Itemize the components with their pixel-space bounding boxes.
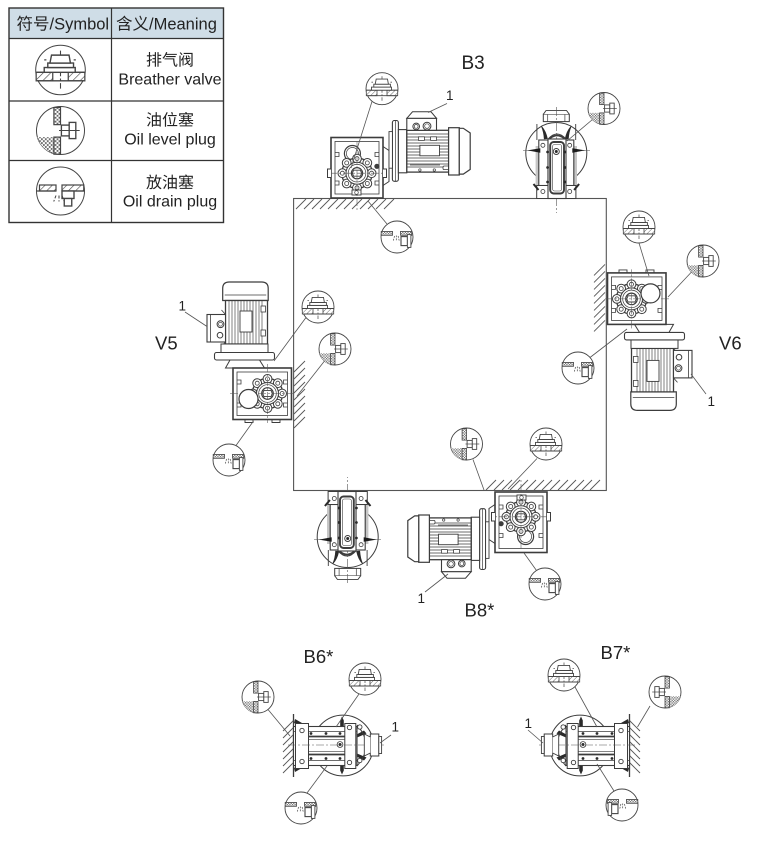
- svg-text:Breather valve: Breather valve: [118, 72, 221, 89]
- svg-text:B7*: B7*: [601, 642, 631, 663]
- svg-text:Oil level plug: Oil level plug: [124, 132, 216, 149]
- svg-text:V5: V5: [155, 333, 178, 354]
- svg-text:1: 1: [179, 299, 187, 314]
- svg-text:/Symbol: /Symbol: [50, 16, 110, 34]
- svg-text:1: 1: [446, 88, 454, 103]
- svg-text:1: 1: [392, 720, 400, 735]
- svg-text:B8*: B8*: [465, 600, 495, 621]
- svg-text:/Meaning: /Meaning: [149, 16, 217, 34]
- svg-text:1: 1: [418, 591, 426, 606]
- svg-text:1: 1: [525, 716, 533, 731]
- svg-text:Oil drain plug: Oil drain plug: [123, 194, 217, 211]
- svg-text:1: 1: [708, 394, 716, 409]
- svg-text:V6: V6: [719, 333, 742, 354]
- svg-text:B3: B3: [462, 53, 485, 74]
- svg-text:B6*: B6*: [304, 646, 334, 667]
